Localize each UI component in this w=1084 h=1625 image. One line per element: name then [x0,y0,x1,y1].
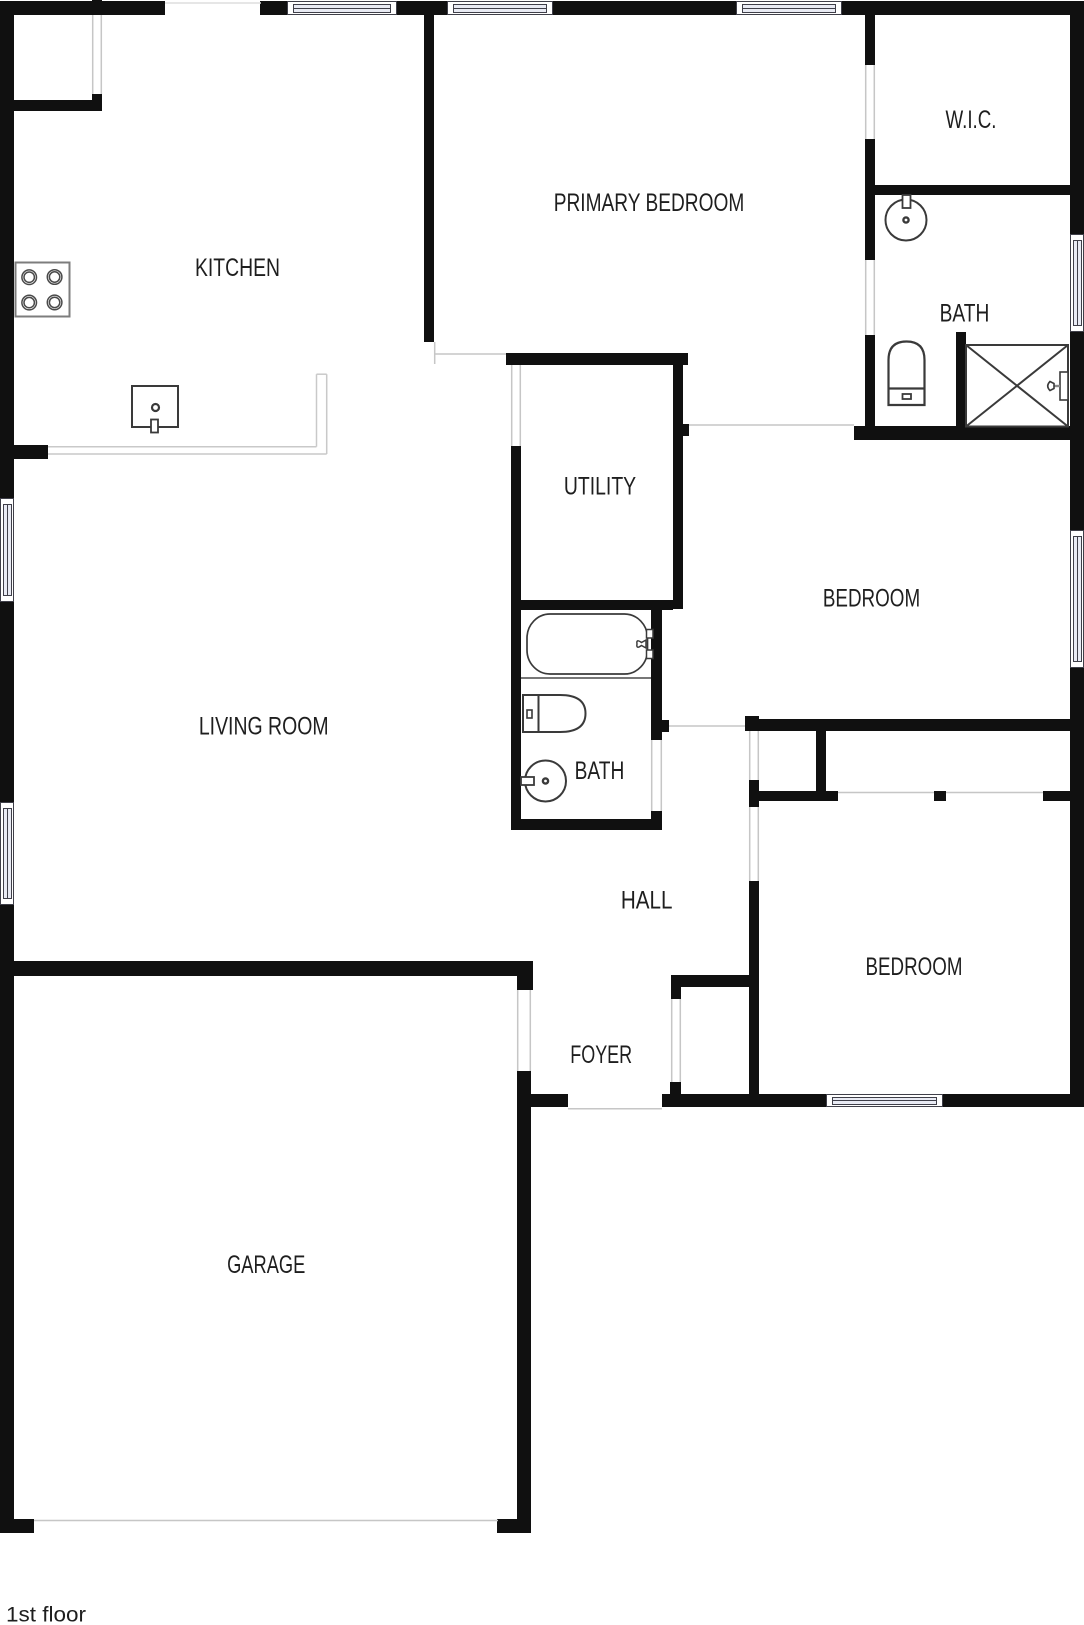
svg-text:HALL: HALL [621,887,673,915]
svg-text:W.I.C.: W.I.C. [946,106,997,134]
svg-text:FOYER: FOYER [570,1041,632,1069]
svg-text:PRIMARY BEDROOM: PRIMARY BEDROOM [554,189,745,217]
svg-text:BEDROOM: BEDROOM [823,585,920,613]
svg-text:1st floor: 1st floor [6,1604,86,1625]
svg-text:GARAGE: GARAGE [227,1251,305,1279]
svg-text:BEDROOM: BEDROOM [866,953,963,981]
svg-text:BATH: BATH [940,300,990,328]
svg-text:KITCHEN: KITCHEN [195,254,280,282]
svg-text:LIVING ROOM: LIVING ROOM [199,713,329,741]
svg-text:UTILITY: UTILITY [564,473,637,501]
svg-text:BATH: BATH [575,757,625,785]
